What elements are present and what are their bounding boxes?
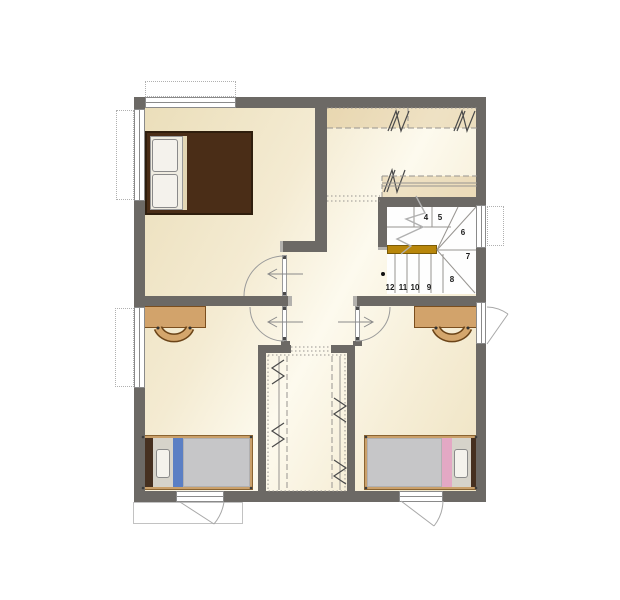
stair-step-number: 8 — [445, 275, 459, 285]
wall-end-cap — [378, 247, 387, 250]
wall-end-cap — [288, 296, 292, 306]
stair-step-number: 5 — [433, 213, 447, 223]
door-leaf-master — [282, 255, 287, 296]
eave-outline-east — [487, 206, 504, 246]
door-leaf-left-bedroom — [282, 306, 287, 341]
wall-stairwell-left — [378, 197, 387, 250]
stair-step-number: 11 — [396, 283, 410, 293]
stair-landing-edge — [387, 245, 437, 254]
floor-plan: 4 5 6 7 8 9 10 11 12 — [0, 0, 620, 600]
wall-master-step — [280, 241, 327, 252]
stair-step-number: 12 — [383, 283, 397, 293]
single-bed-left-mattress — [183, 438, 250, 487]
eave-outline-west-upper — [116, 110, 134, 200]
closet-shelf-band-east — [382, 176, 477, 198]
stair-step-number: 10 — [408, 283, 422, 293]
wall-center-closet-right — [347, 345, 355, 492]
single-bed-left-pillow — [156, 449, 170, 478]
window-stairwell-east — [476, 205, 486, 248]
window-right-bedroom-south — [399, 491, 443, 502]
desk-right-bedroom — [414, 306, 478, 328]
eave-outline-north — [145, 81, 236, 97]
master-bed-pillow — [152, 139, 178, 172]
door-leaf-right-bedroom — [355, 306, 360, 341]
single-bed-left-headboard — [144, 438, 153, 487]
balcony-outline — [133, 502, 243, 524]
master-bed-pillow — [152, 174, 178, 208]
wall-hall-south-right — [353, 296, 486, 306]
window-left-bedroom-south — [176, 491, 224, 502]
desk-left-bedroom — [144, 306, 206, 328]
wall-center-closet-top-left — [258, 345, 291, 353]
closet-shelf-band-north — [327, 108, 477, 128]
wall-end-cap — [280, 241, 283, 252]
single-bed-right-mattress — [367, 438, 442, 487]
wall-end-cap — [353, 296, 357, 306]
stair-step-number: 7 — [461, 252, 475, 262]
window-master-west — [134, 109, 145, 201]
wall-center-closet-top-right — [331, 345, 355, 353]
wall-hall-south-left — [134, 296, 292, 306]
stair-step-number: 4 — [419, 213, 433, 223]
wall-center-closet-left — [258, 345, 266, 492]
single-bed-right-pink-blanket — [442, 438, 452, 487]
eave-outline-west-lower — [115, 308, 134, 387]
window-right-bedroom-east — [476, 302, 486, 344]
window-master-north — [145, 97, 236, 108]
wall-stairwell-top — [378, 197, 486, 207]
window-left-bedroom-west — [134, 307, 145, 388]
single-bed-right-pillow — [454, 449, 468, 478]
stair-step-number: 9 — [422, 283, 436, 293]
stair-step-number: 6 — [456, 228, 470, 238]
wall-master-closet-divider — [315, 108, 327, 244]
master-bed-sheet-fold — [183, 136, 187, 210]
single-bed-left-blue-blanket — [173, 438, 183, 487]
